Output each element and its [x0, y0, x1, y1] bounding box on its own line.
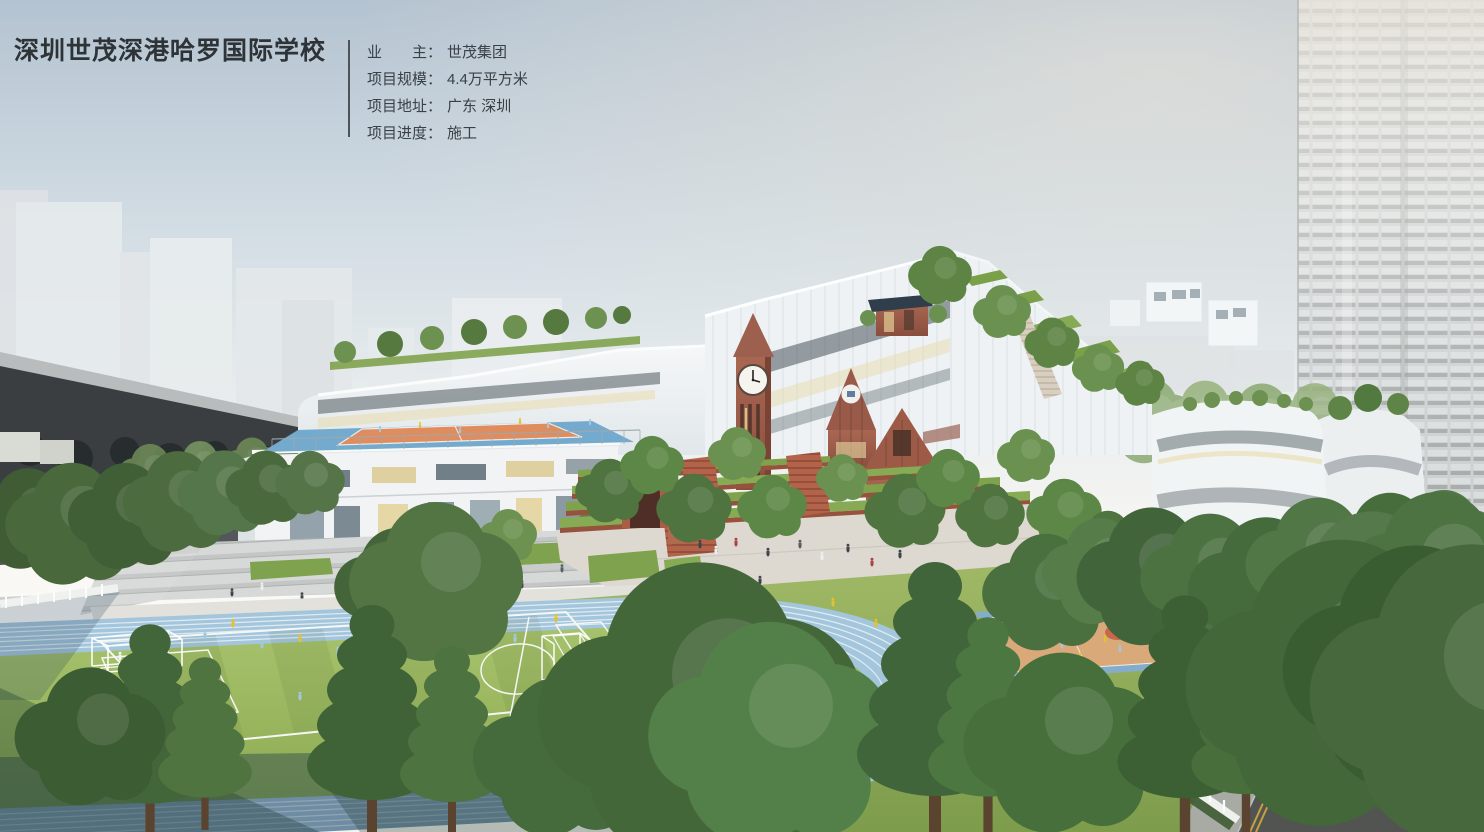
info-value: 世茂集团	[447, 39, 507, 66]
info-row-progress: 项目进度： 施工	[367, 120, 528, 147]
info-label: 项目地址：	[367, 93, 442, 120]
info-row-owner: 业 主： 世茂集团	[367, 39, 528, 66]
page-title: 深圳世茂深港哈罗国际学校	[14, 36, 326, 66]
header-divider	[348, 40, 350, 137]
info-label: 项目规模：	[367, 66, 442, 93]
info-value: 4.4万平方米	[447, 66, 528, 93]
project-header: 深圳世茂深港哈罗国际学校 业 主： 世茂集团 项目规模： 4.4万平方米 项目地…	[14, 36, 528, 147]
rendering-canvas: 深圳世茂深港哈罗国际学校 业 主： 世茂集团 项目规模： 4.4万平方米 项目地…	[0, 0, 1484, 832]
info-label: 业 主：	[367, 39, 442, 66]
info-row-scale: 项目规模： 4.4万平方米	[367, 66, 528, 93]
info-label: 项目进度：	[367, 120, 442, 147]
info-value: 施工	[447, 120, 477, 147]
info-row-address: 项目地址： 广东 深圳	[367, 93, 528, 120]
info-value: 广东 深圳	[447, 93, 511, 120]
project-info-list: 业 主： 世茂集团 项目规模： 4.4万平方米 项目地址： 广东 深圳 项目进度…	[367, 36, 528, 147]
